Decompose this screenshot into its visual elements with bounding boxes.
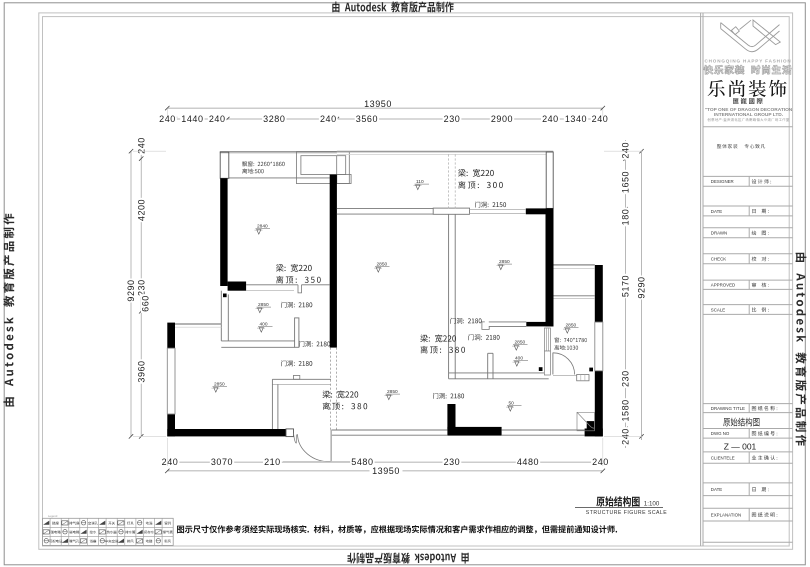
svg-text:INTERNATIONAL GROUP LTD.: INTERNATIONAL GROUP LTD. — [714, 112, 783, 118]
svg-text:3070: 3070 — [211, 457, 233, 467]
svg-text:4200: 4200 — [136, 199, 146, 221]
svg-text:9290: 9290 — [126, 279, 136, 301]
svg-text:230: 230 — [444, 114, 461, 124]
svg-text:"TOP ONE OF DRAGON DECORATION: "TOP ONE OF DRAGON DECORATION — [705, 107, 793, 113]
svg-text:240: 240 — [542, 114, 559, 124]
svg-text:180: 180 — [621, 209, 631, 226]
svg-text:230: 230 — [621, 370, 631, 387]
svg-text:SCALE: SCALE — [711, 307, 725, 312]
svg-text:CHECK: CHECK — [711, 257, 726, 262]
svg-text:240: 240 — [320, 114, 337, 124]
svg-text:210: 210 — [264, 457, 281, 467]
svg-text:1650: 1650 — [621, 171, 631, 193]
svg-text:240: 240 — [592, 114, 609, 124]
svg-text:230: 230 — [136, 279, 146, 296]
svg-text:240: 240 — [592, 457, 609, 467]
svg-text:9290: 9290 — [637, 276, 647, 298]
svg-text:CHONGQING HAPPY FASHION: CHONGQING HAPPY FASHION — [704, 59, 791, 64]
svg-text:STRUCTURE FIGURE SCALE: STRUCTURE FIGURE SCALE — [586, 510, 667, 516]
svg-text:DATE: DATE — [711, 487, 722, 492]
svg-text:13950: 13950 — [364, 99, 392, 109]
svg-text:240: 240 — [162, 457, 179, 467]
svg-text:240: 240 — [621, 142, 631, 159]
svg-text:DATE: DATE — [711, 209, 722, 214]
svg-text:4480: 4480 — [517, 457, 539, 467]
svg-text:2900: 2900 — [491, 114, 513, 124]
svg-text:3960: 3960 — [136, 360, 146, 382]
svg-text:CLIENTELE: CLIENTELE — [711, 455, 735, 460]
svg-text:3560: 3560 — [356, 114, 378, 124]
svg-text:1340: 1340 — [565, 114, 587, 124]
svg-text:13950: 13950 — [372, 466, 400, 476]
svg-text:660: 660 — [141, 295, 151, 312]
svg-text:DRAWING TITLE: DRAWING TITLE — [711, 406, 745, 411]
svg-text:1580: 1580 — [621, 399, 631, 421]
svg-text:1:100: 1:100 — [644, 500, 660, 507]
svg-text:5480: 5480 — [351, 457, 373, 467]
svg-text:EXPLANATION: EXPLANATION — [711, 512, 741, 517]
svg-text:230: 230 — [444, 457, 461, 467]
svg-text:DESIGNER: DESIGNER — [711, 179, 734, 184]
svg-text:DWG NO: DWG NO — [711, 431, 730, 436]
svg-text:3280: 3280 — [263, 114, 285, 124]
svg-text:5170: 5170 — [621, 275, 631, 297]
svg-text:Z — 001: Z — 001 — [724, 441, 757, 451]
svg-text:DRAWN: DRAWN — [711, 231, 727, 236]
svg-text:240: 240 — [209, 114, 226, 124]
svg-text:Legend: Legend — [48, 514, 58, 518]
svg-text:1440: 1440 — [181, 114, 203, 124]
svg-text:APPROVED: APPROVED — [711, 283, 735, 288]
